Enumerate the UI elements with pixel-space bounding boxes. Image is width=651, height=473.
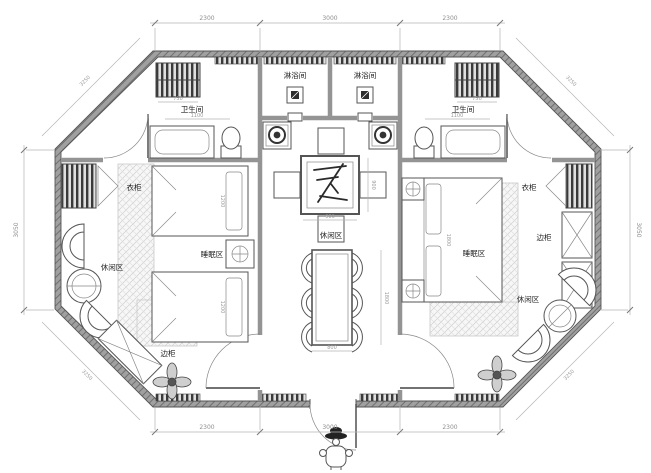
floor-plan-canvas: 淋浴间 淋浴间 卫生间 卫生间 衣柜 衣柜 休闲区 休闲区 休闲区 睡眠区 睡眠… [0,0,651,473]
dim-diag-br: 3250 [563,369,576,382]
shower-door-left [288,113,302,121]
washbasin-left [263,122,291,149]
room-label-sleeping-left: 睡眠区 [201,250,224,259]
room-label-leisure-center: 休闲区 [320,230,343,240]
shower-right [357,87,373,103]
room-label-shower-left: 淋浴间 [284,70,307,80]
dimension-top: 2300 3000 2300 [150,15,505,52]
dimension-left: 3050 [13,145,54,315]
room-label-wardrobe-right: 衣柜 [522,182,537,192]
dim-diag-tr: 3250 [564,75,577,88]
dim-bath-left: 1100 [191,113,204,119]
entry-opening [310,398,356,410]
room-label-shower-right: 淋浴间 [354,70,377,80]
door-bath-left [104,114,148,158]
dim-tea-width: 900 [325,214,335,220]
round-table-icon [67,269,101,303]
shower-door-right [358,113,372,121]
entry-figure-icon [320,427,353,470]
bathtub-icon [441,126,505,158]
dim-tea-height: 900 [370,180,376,190]
bed-double-icon [402,178,502,302]
dim-bottom-right: 2300 [442,424,457,431]
wardrobe-right-icon [546,164,592,208]
plant-icon [478,356,516,392]
room-label-leisure-left: 休闲区 [101,262,124,272]
dim-bottom-left: 2300 [199,424,214,431]
lounge-chair-icon [62,224,84,268]
bed-single-icon [152,166,248,236]
dim-top-mid: 3000 [322,15,337,22]
dim-dining-height: 1800 [383,292,389,305]
dining-table-group [302,250,363,352]
dim-bed-single-2: 1200 [219,301,225,314]
bed-single-icon [152,272,248,342]
chair-icon [274,172,300,198]
door-bath-right [507,114,551,158]
dim-dining-width: 800 [327,345,337,351]
room-label-cabinet-left: 边柜 [161,348,176,358]
room-label-wardrobe-left: 衣柜 [127,182,142,192]
dim-diag-tl: 3250 [79,75,92,88]
dim-rack-left: 750 [173,96,183,102]
bedside-lamp-icon [402,178,424,200]
dining-chairs-right [352,253,362,352]
room-label-cabinet-right: 边柜 [537,232,552,242]
nightstand-icon [226,240,254,268]
door-bedroom-right [400,334,454,388]
dim-left: 3050 [13,222,20,237]
room-label-leisure-right: 休闲区 [517,294,540,304]
dining-table-icon [312,250,352,345]
shower-left [287,87,303,103]
washbasin-right [369,122,397,149]
dimension-right: 3050 [600,145,642,315]
dim-diag-bl: 3250 [80,369,93,382]
dim-rack-right: 750 [472,96,482,102]
dim-top-left: 2300 [199,15,214,22]
floor-plan-page: 淋浴间 淋浴间 卫生间 卫生间 衣柜 衣柜 休闲区 休闲区 休闲区 睡眠区 睡眠… [0,0,651,473]
lounge-chair-icon [512,324,559,371]
dim-right: 3050 [635,222,642,237]
wardrobe-left-icon [62,164,118,208]
dimension-bottom: 2300 3000 2300 [150,406,505,435]
toilet-icon [414,127,434,158]
dim-bottom-mid: 3000 [322,424,337,431]
dining-chairs-left [302,253,312,352]
chair-icon [318,128,344,154]
round-table-icon [544,300,576,332]
dim-top-right: 2300 [442,15,457,22]
toilet-icon [221,127,241,158]
room-label-sleeping-right: 睡眠区 [463,249,486,258]
dim-bath-right: 1100 [451,113,464,119]
dim-bed-double: 1800 [445,234,451,247]
dim-bed-single-1: 1200 [219,195,225,208]
bedside-lamp-icon [402,280,424,302]
bathtub-icon [150,126,214,158]
